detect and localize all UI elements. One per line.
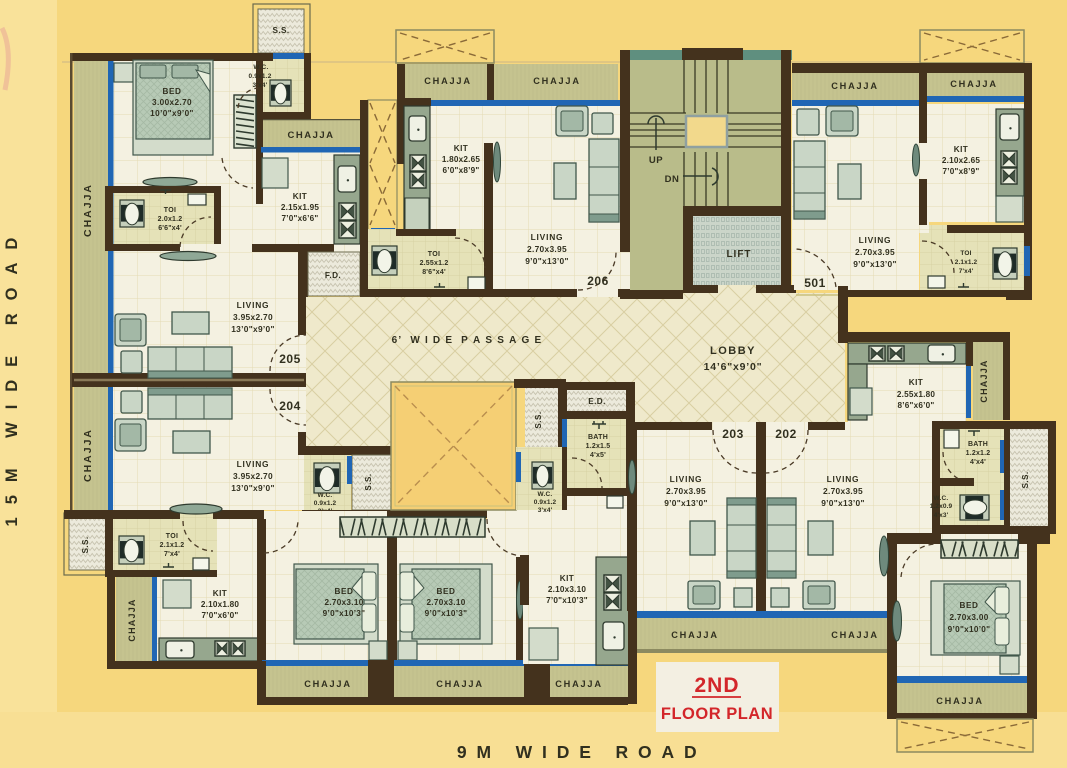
svg-text:7’0"x8’9": 7’0"x8’9" xyxy=(943,167,980,176)
svg-text:LIVING: LIVING xyxy=(827,474,860,484)
svg-text:1.80x2.65: 1.80x2.65 xyxy=(442,155,480,164)
svg-text:7’0"x6’0": 7’0"x6’0" xyxy=(202,611,239,620)
svg-text:7'x4': 7'x4' xyxy=(164,551,180,558)
svg-text:206: 206 xyxy=(587,274,609,288)
svg-text:W.C.: W.C. xyxy=(253,64,268,71)
svg-text:7'x4': 7'x4' xyxy=(959,268,974,275)
svg-text:3.00x2.70: 3.00x2.70 xyxy=(152,98,192,107)
svg-text:2.70x3.95: 2.70x3.95 xyxy=(823,486,863,496)
svg-text:LIVING: LIVING xyxy=(859,235,892,245)
svg-text:9’0"x10’3": 9’0"x10’3" xyxy=(323,609,366,618)
svg-text:CHAJJA: CHAJJA xyxy=(831,630,879,640)
svg-text:CHAJJA: CHAJJA xyxy=(436,679,484,689)
svg-text:0.9x1.2: 0.9x1.2 xyxy=(314,500,337,507)
svg-text:KIT: KIT xyxy=(560,574,574,583)
svg-text:LIVING: LIVING xyxy=(237,300,270,310)
svg-text:10’0"x9’0": 10’0"x9’0" xyxy=(150,109,194,118)
svg-text:F.D.: F.D. xyxy=(325,271,341,280)
svg-text:0.9x1.2: 0.9x1.2 xyxy=(534,499,557,506)
svg-text:4'x5': 4'x5' xyxy=(590,452,606,459)
svg-text:CHAJJA: CHAJJA xyxy=(127,598,137,641)
svg-text:KIT: KIT xyxy=(454,144,468,153)
svg-text:W.C.: W.C. xyxy=(318,492,333,499)
svg-text:2.70x3.95: 2.70x3.95 xyxy=(855,247,895,257)
svg-text:1 5 M W I D E R O A D: 1 5 M W I D E R O A D xyxy=(3,234,21,527)
svg-text:2.1x1.2: 2.1x1.2 xyxy=(955,259,978,266)
svg-text:2.10x1.80: 2.10x1.80 xyxy=(201,600,239,609)
svg-text:501: 501 xyxy=(804,276,826,290)
svg-text:TOI: TOI xyxy=(166,533,178,540)
svg-text:LIVING: LIVING xyxy=(670,474,703,484)
svg-text:S.S.: S.S. xyxy=(272,26,289,35)
svg-text:13’0"x9’0": 13’0"x9’0" xyxy=(231,483,275,493)
svg-text:2.70x3.10: 2.70x3.10 xyxy=(426,598,465,607)
svg-text:2.1x1.2: 2.1x1.2 xyxy=(160,542,185,549)
svg-text:6’ W I D E P A S S A G E: 6’ W I D E P A S S A G E xyxy=(392,335,543,346)
svg-text:4'x4': 4'x4' xyxy=(970,459,986,466)
svg-text:2.55x1.80: 2.55x1.80 xyxy=(897,390,935,399)
svg-text:CHAJJA: CHAJJA xyxy=(533,76,581,86)
svg-text:BED: BED xyxy=(959,601,978,610)
svg-text:2.10x3.10: 2.10x3.10 xyxy=(548,585,586,594)
svg-text:3'x4': 3'x4' xyxy=(538,507,553,514)
svg-text:205: 205 xyxy=(279,352,301,366)
svg-text:1.2x0.9: 1.2x0.9 xyxy=(930,503,953,510)
svg-text:1.2x1.2: 1.2x1.2 xyxy=(966,450,991,457)
svg-text:9 M W I D E R O A D: 9 M W I D E R O A D xyxy=(457,742,699,762)
svg-text:FLOOR PLAN: FLOOR PLAN xyxy=(661,705,773,723)
svg-text:9’0"x13’0": 9’0"x13’0" xyxy=(853,259,897,269)
svg-text:LIVING: LIVING xyxy=(237,459,270,469)
svg-text:BATH: BATH xyxy=(588,434,608,441)
svg-text:2.70x3.10: 2.70x3.10 xyxy=(324,598,363,607)
svg-text:CHAJJA: CHAJJA xyxy=(287,130,334,141)
svg-text:DN: DN xyxy=(665,174,680,185)
svg-text:1.2x1.5: 1.2x1.5 xyxy=(586,443,611,450)
svg-text:0.9x1.2: 0.9x1.2 xyxy=(248,73,271,80)
svg-text:2.10x2.65: 2.10x2.65 xyxy=(942,156,980,165)
svg-text:W.C.: W.C. xyxy=(934,495,949,502)
svg-text:6’0"x8’9": 6’0"x8’9" xyxy=(443,166,480,175)
svg-text:S.S.: S.S. xyxy=(1021,471,1030,488)
svg-text:7’0"x6’6": 7’0"x6’6" xyxy=(282,214,319,223)
svg-text:CHAJJA: CHAJJA xyxy=(304,679,352,689)
svg-text:CHAJJA: CHAJJA xyxy=(424,76,472,86)
svg-text:CHAJJA: CHAJJA xyxy=(831,81,879,91)
svg-text:4'x3': 4'x3' xyxy=(934,512,949,519)
svg-text:2.15x1.95: 2.15x1.95 xyxy=(281,203,319,212)
svg-text:W.C.: W.C. xyxy=(538,491,553,498)
svg-text:2.70x3.95: 2.70x3.95 xyxy=(666,486,706,496)
svg-text:2.70x3.00: 2.70x3.00 xyxy=(949,613,988,622)
svg-text:9’0"x10’0": 9’0"x10’0" xyxy=(948,625,991,634)
svg-text:UP: UP xyxy=(649,155,663,166)
svg-text:LOBBY: LOBBY xyxy=(710,345,756,357)
svg-text:CHAJJA: CHAJJA xyxy=(671,630,719,640)
svg-text:KIT: KIT xyxy=(213,589,227,598)
svg-text:9’0"x10’3": 9’0"x10’3" xyxy=(425,609,468,618)
svg-text:2.70x3.95: 2.70x3.95 xyxy=(527,244,567,254)
svg-text:9’0"x13’0": 9’0"x13’0" xyxy=(664,498,708,508)
svg-text:CHAJJA: CHAJJA xyxy=(950,79,998,89)
svg-text:202: 202 xyxy=(775,427,797,441)
svg-text:9’0"x13’0": 9’0"x13’0" xyxy=(525,256,569,266)
svg-text:CHAJJA: CHAJJA xyxy=(82,428,94,482)
svg-text:TOI: TOI xyxy=(428,251,440,258)
svg-text:CHAJJA: CHAJJA xyxy=(555,679,603,689)
svg-text:3.95x2.70: 3.95x2.70 xyxy=(233,312,273,322)
svg-text:BATH: BATH xyxy=(968,441,988,448)
svg-text:TOI: TOI xyxy=(960,250,971,257)
svg-text:KIT: KIT xyxy=(293,192,307,201)
svg-text:BED: BED xyxy=(334,587,353,596)
svg-text:CHAJJA: CHAJJA xyxy=(979,359,989,402)
svg-text:E.D.: E.D. xyxy=(588,397,606,406)
svg-text:LIFT: LIFT xyxy=(726,249,751,260)
svg-text:3.95x2.70: 3.95x2.70 xyxy=(233,471,273,481)
svg-text:2.55x1.2: 2.55x1.2 xyxy=(420,260,449,267)
svg-text:8'6"x4': 8'6"x4' xyxy=(422,269,446,276)
svg-text:KIT: KIT xyxy=(954,145,968,154)
svg-text:8’6"x6’0": 8’6"x6’0" xyxy=(898,401,935,410)
svg-text:13’0"x9’0": 13’0"x9’0" xyxy=(231,324,275,334)
svg-text:S.S.: S.S. xyxy=(364,473,373,490)
svg-text:S.S.: S.S. xyxy=(81,536,90,553)
svg-text:9’0"x13’0": 9’0"x13’0" xyxy=(821,498,865,508)
svg-text:6'6"x4': 6'6"x4' xyxy=(158,225,182,232)
svg-text:TOI: TOI xyxy=(164,207,176,214)
svg-text:BED: BED xyxy=(436,587,455,596)
svg-text:2.0x1.2: 2.0x1.2 xyxy=(158,216,183,223)
svg-text:14’6"x9’0": 14’6"x9’0" xyxy=(704,361,763,373)
svg-text:BED: BED xyxy=(162,87,181,96)
svg-text:204: 204 xyxy=(279,399,301,413)
svg-text:7’0"x10’3": 7’0"x10’3" xyxy=(546,596,588,605)
svg-text:2ND: 2ND xyxy=(694,674,739,697)
svg-text:CHAJJA: CHAJJA xyxy=(82,183,94,237)
svg-text:LIVING: LIVING xyxy=(531,232,564,242)
svg-text:KIT: KIT xyxy=(909,378,923,387)
svg-text:203: 203 xyxy=(722,427,744,441)
svg-text:CHAJJA: CHAJJA xyxy=(936,696,984,706)
svg-text:S.S.: S.S. xyxy=(534,411,543,428)
